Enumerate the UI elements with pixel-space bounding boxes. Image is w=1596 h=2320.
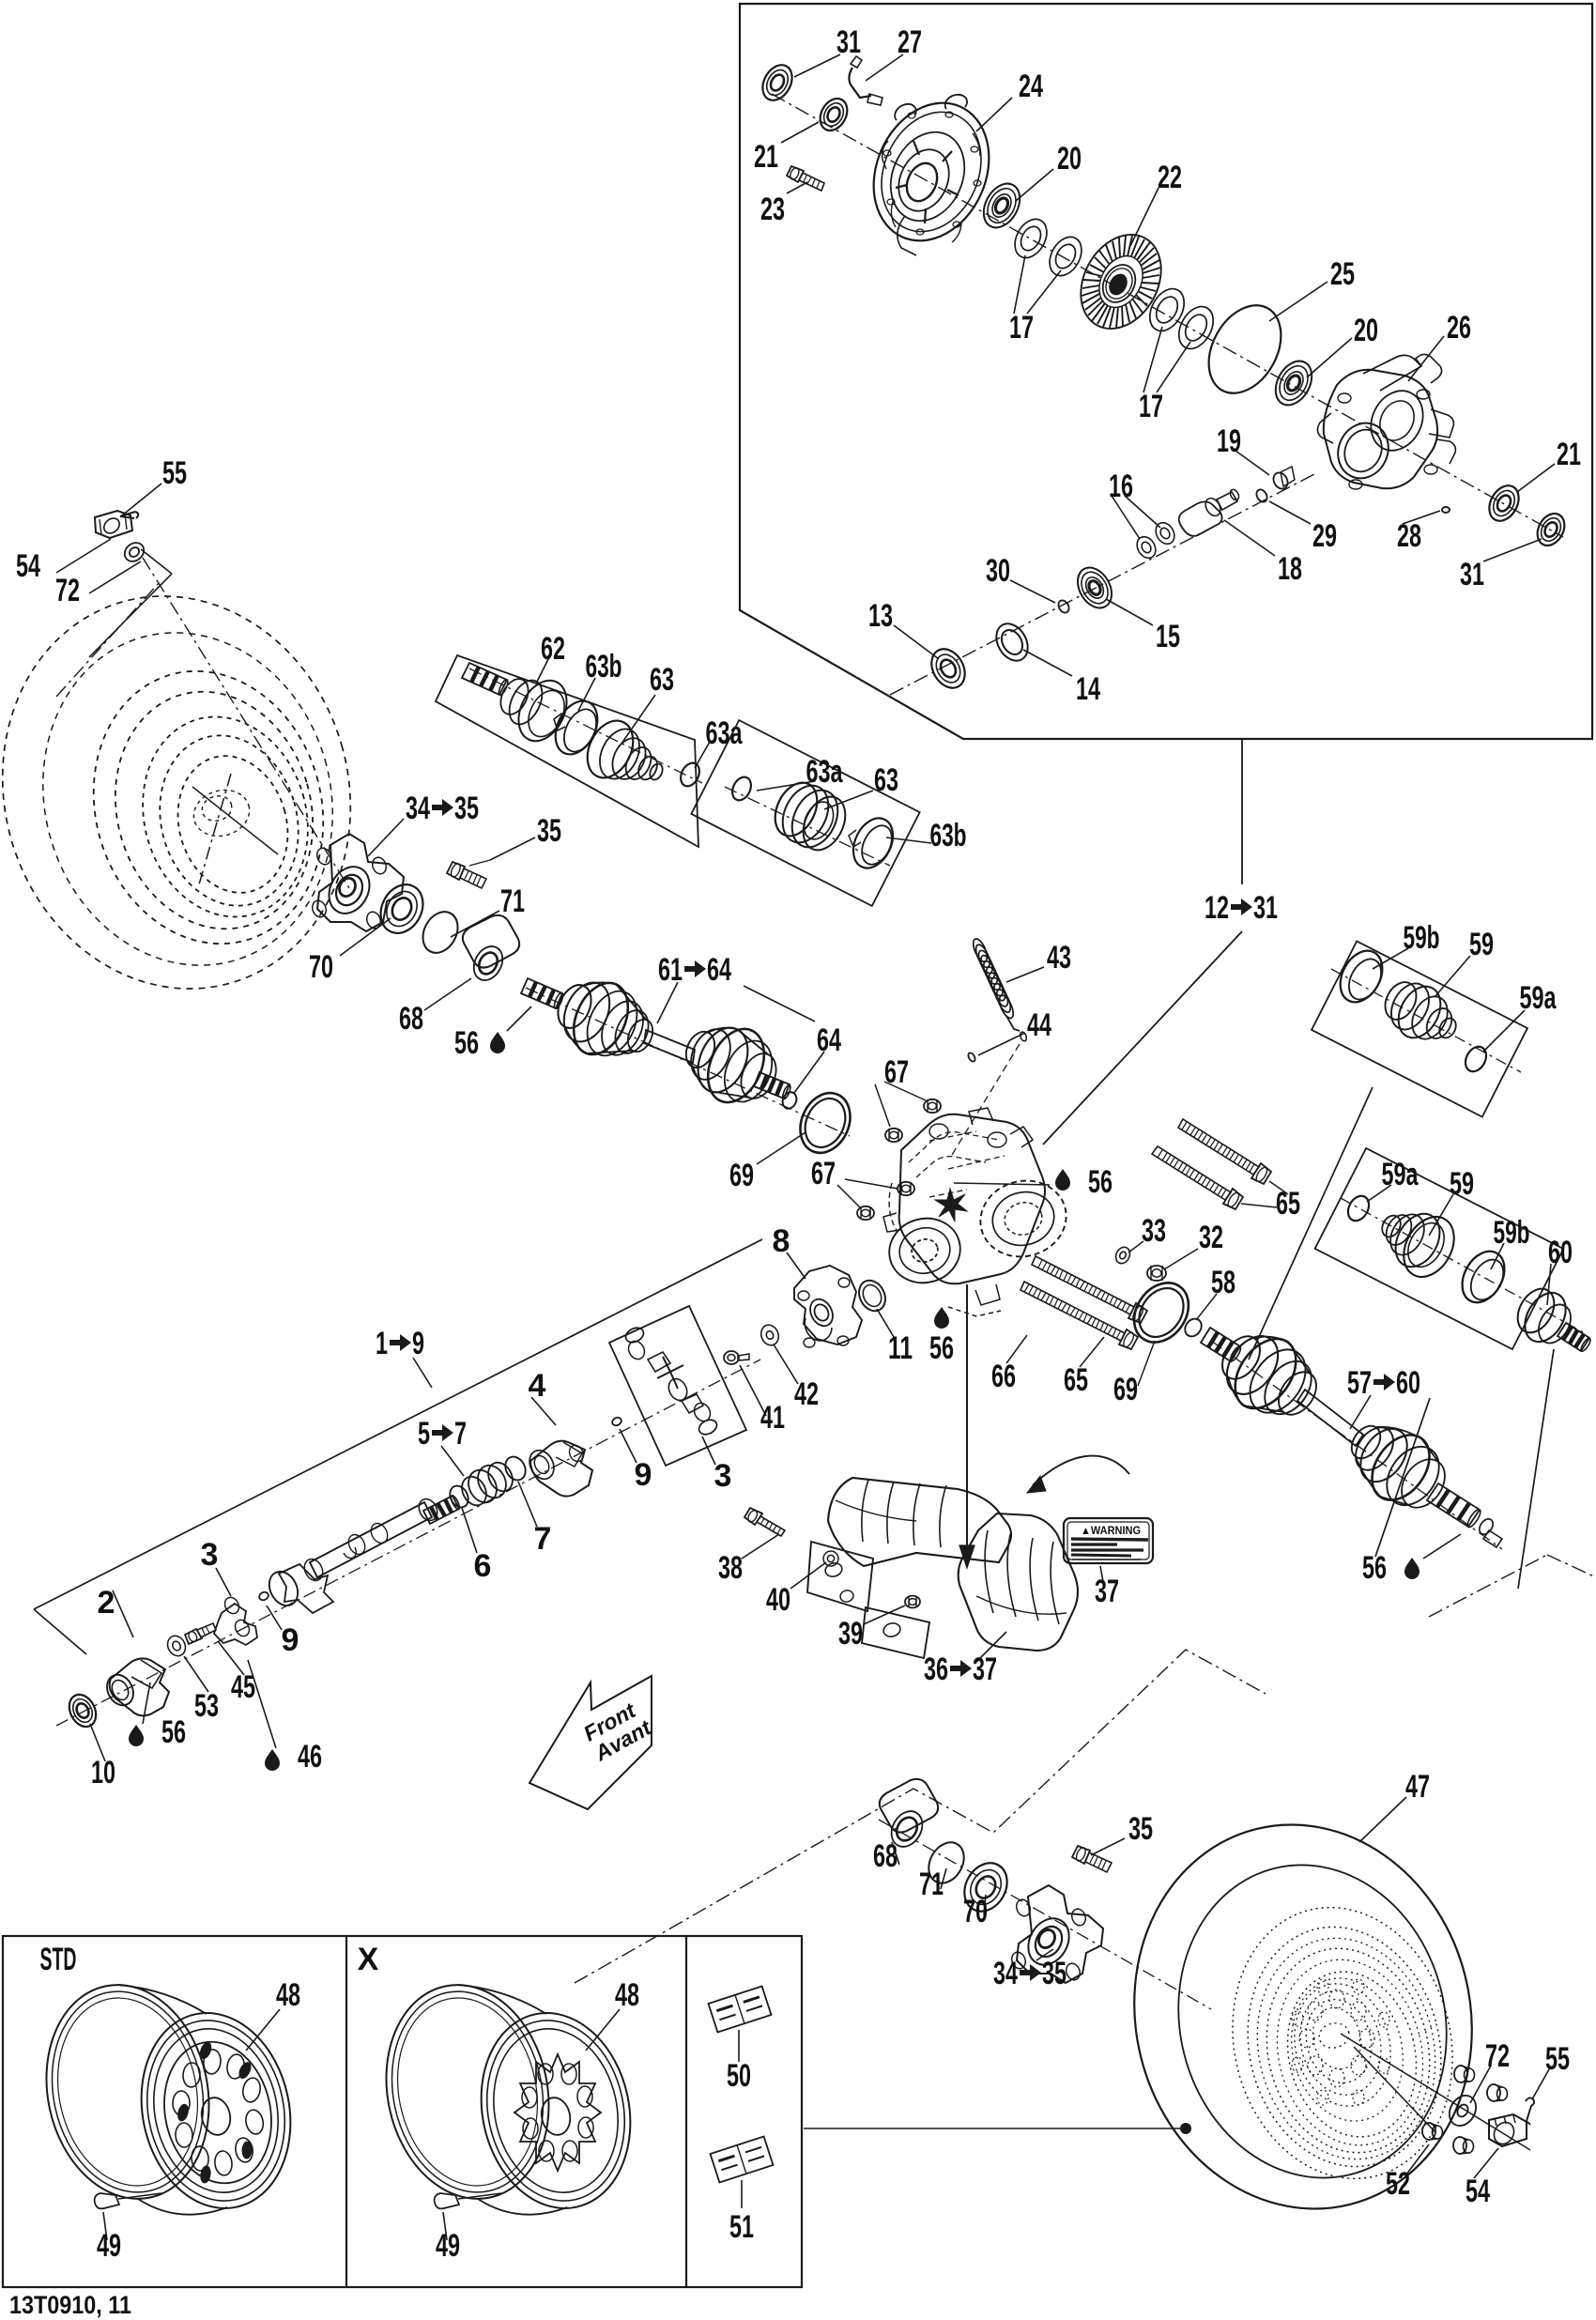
svg-text:67: 67 <box>884 1054 909 1090</box>
svg-text:23: 23 <box>760 192 785 227</box>
svg-text:29: 29 <box>1312 518 1337 554</box>
svg-text:41: 41 <box>760 1400 785 1436</box>
svg-text:63a: 63a <box>806 754 844 790</box>
svg-text:15: 15 <box>1156 619 1180 654</box>
svg-text:24: 24 <box>1019 69 1043 104</box>
svg-text:27: 27 <box>898 24 922 60</box>
svg-text:11: 11 <box>888 1330 913 1366</box>
svg-text:56: 56 <box>454 1025 479 1061</box>
svg-text:64: 64 <box>817 1022 841 1058</box>
svg-text:8: 8 <box>773 1223 790 1259</box>
svg-text:36: 36 <box>924 1652 948 1687</box>
svg-text:35: 35 <box>454 791 479 826</box>
svg-text:48: 48 <box>615 1977 639 2013</box>
svg-text:4: 4 <box>529 1368 546 1404</box>
svg-text:68: 68 <box>399 1001 423 1037</box>
svg-text:42: 42 <box>794 1376 819 1412</box>
svg-text:50: 50 <box>727 2058 751 2094</box>
svg-text:63b: 63b <box>586 649 622 684</box>
svg-text:3: 3 <box>714 1458 732 1494</box>
svg-text:59b: 59b <box>1494 1215 1530 1251</box>
svg-text:17: 17 <box>1139 389 1163 424</box>
svg-text:65: 65 <box>1064 1362 1088 1398</box>
svg-text:19: 19 <box>1217 423 1241 459</box>
svg-text:13: 13 <box>868 598 893 634</box>
svg-text:66: 66 <box>991 1359 1016 1394</box>
svg-text:9: 9 <box>412 1326 424 1361</box>
svg-text:46: 46 <box>298 1739 322 1775</box>
svg-text:34: 34 <box>406 791 430 826</box>
svg-text:61: 61 <box>658 952 683 988</box>
svg-text:20: 20 <box>1354 313 1378 348</box>
svg-text:7: 7 <box>454 1416 467 1452</box>
svg-text:38: 38 <box>718 1550 743 1586</box>
svg-text:49: 49 <box>97 2228 121 2264</box>
svg-text:55: 55 <box>1545 2041 1570 2077</box>
svg-text:59: 59 <box>1450 1166 1474 1202</box>
svg-text:20: 20 <box>1057 141 1082 177</box>
svg-text:70: 70 <box>309 949 333 985</box>
svg-text:70: 70 <box>963 1894 988 1929</box>
svg-text:56: 56 <box>1088 1164 1113 1200</box>
svg-text:9: 9 <box>282 1622 299 1658</box>
svg-text:39: 39 <box>838 1616 863 1652</box>
svg-text:60: 60 <box>1548 1235 1573 1270</box>
svg-text:STD: STD <box>40 1942 77 1977</box>
svg-text:33: 33 <box>1142 1213 1166 1249</box>
svg-text:31: 31 <box>836 24 861 60</box>
svg-text:56: 56 <box>929 1330 954 1366</box>
svg-text:60: 60 <box>1396 1365 1420 1401</box>
svg-text:63a: 63a <box>706 715 744 751</box>
svg-text:1: 1 <box>376 1326 388 1361</box>
svg-text:35: 35 <box>1128 1811 1153 1847</box>
svg-text:17: 17 <box>1009 310 1034 346</box>
svg-text:63: 63 <box>874 762 898 798</box>
svg-text:49: 49 <box>436 2228 460 2264</box>
svg-text:58: 58 <box>1211 1265 1235 1300</box>
svg-text:34: 34 <box>993 1956 1018 1991</box>
svg-text:57: 57 <box>1347 1365 1372 1401</box>
svg-text:7: 7 <box>534 1521 552 1557</box>
svg-text:63: 63 <box>650 662 674 698</box>
svg-text:12: 12 <box>1205 890 1229 926</box>
svg-text:59a: 59a <box>1382 1157 1420 1192</box>
svg-text:16: 16 <box>1109 469 1133 504</box>
svg-text:45: 45 <box>231 1669 255 1705</box>
svg-text:65: 65 <box>1276 1186 1300 1221</box>
svg-text:47: 47 <box>1405 1769 1430 1805</box>
svg-text:71: 71 <box>500 883 525 919</box>
svg-text:72: 72 <box>1485 2038 1510 2074</box>
svg-text:54: 54 <box>16 548 40 584</box>
svg-text:37: 37 <box>973 1652 997 1687</box>
svg-text:X: X <box>358 1942 379 1977</box>
svg-text:2: 2 <box>98 1585 115 1621</box>
svg-text:59a: 59a <box>1520 980 1558 1016</box>
svg-text:72: 72 <box>55 573 80 608</box>
svg-text:22: 22 <box>1158 160 1182 195</box>
svg-text:31: 31 <box>1460 557 1484 592</box>
svg-text:21: 21 <box>1557 437 1581 472</box>
svg-text:68: 68 <box>873 1838 898 1874</box>
svg-text:3: 3 <box>201 1537 219 1573</box>
svg-text:18: 18 <box>1278 551 1302 587</box>
svg-text:48: 48 <box>276 1977 300 2013</box>
svg-text:32: 32 <box>1199 1220 1223 1255</box>
svg-text:6: 6 <box>474 1548 492 1584</box>
svg-text:14: 14 <box>1076 671 1100 707</box>
svg-text:30: 30 <box>986 553 1010 589</box>
svg-text:55: 55 <box>162 455 187 491</box>
svg-text:69: 69 <box>729 1158 754 1193</box>
svg-text:26: 26 <box>1447 310 1471 346</box>
svg-text:13T0910, 11: 13T0910, 11 <box>9 2291 131 2319</box>
svg-text:▲WARNING: ▲WARNING <box>1081 1524 1141 1537</box>
svg-text:25: 25 <box>1330 256 1355 292</box>
svg-text:54: 54 <box>1466 2174 1490 2209</box>
svg-text:37: 37 <box>1095 1574 1119 1609</box>
svg-text:64: 64 <box>707 952 731 988</box>
svg-text:56: 56 <box>1362 1550 1387 1586</box>
svg-text:69: 69 <box>1113 1372 1138 1407</box>
svg-text:59: 59 <box>1469 927 1494 962</box>
svg-text:51: 51 <box>729 2209 754 2245</box>
svg-text:43: 43 <box>1047 940 1071 976</box>
svg-text:52: 52 <box>1386 2166 1410 2202</box>
svg-text:10: 10 <box>91 1755 115 1790</box>
svg-text:28: 28 <box>1397 518 1421 554</box>
svg-text:71: 71 <box>919 1867 944 1902</box>
svg-text:35: 35 <box>537 813 561 849</box>
svg-text:31: 31 <box>1253 890 1278 926</box>
svg-text:59b: 59b <box>1404 920 1440 956</box>
svg-text:56: 56 <box>161 1714 186 1750</box>
svg-text:21: 21 <box>754 139 778 175</box>
svg-text:9: 9 <box>635 1457 652 1493</box>
svg-text:67: 67 <box>811 1156 836 1191</box>
svg-text:44: 44 <box>1027 1007 1051 1043</box>
svg-text:40: 40 <box>766 1582 790 1618</box>
svg-text:5: 5 <box>418 1416 430 1452</box>
svg-text:35: 35 <box>1042 1956 1067 1991</box>
svg-text:62: 62 <box>541 631 565 667</box>
svg-text:63b: 63b <box>930 818 967 853</box>
svg-text:53: 53 <box>194 1688 219 1724</box>
